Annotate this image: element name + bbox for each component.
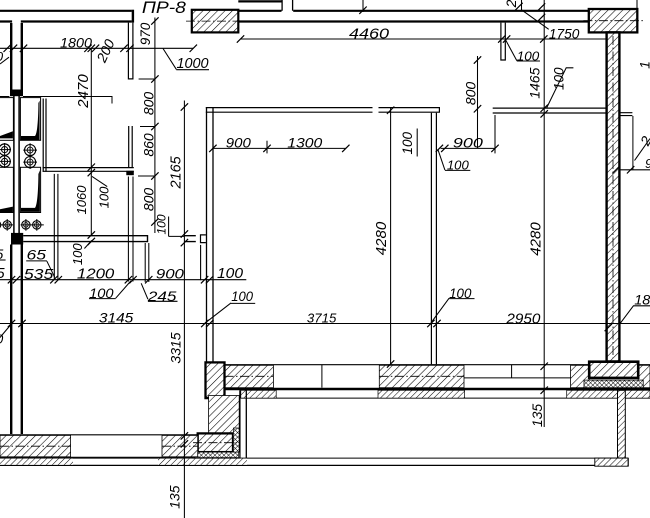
svg-text:800: 800 <box>140 188 156 212</box>
svg-text:3145: 3145 <box>99 310 134 326</box>
svg-text:9: 9 <box>645 156 650 171</box>
svg-text:1: 1 <box>637 61 650 69</box>
svg-text:100: 100 <box>89 285 114 301</box>
svg-text:65: 65 <box>27 246 47 262</box>
svg-text:2950: 2950 <box>505 311 540 327</box>
svg-text:4280: 4280 <box>528 222 545 256</box>
svg-text:2470: 2470 <box>75 74 92 109</box>
svg-text:100: 100 <box>449 285 472 301</box>
svg-text:900: 900 <box>226 134 251 150</box>
svg-text:1750: 1750 <box>549 25 580 41</box>
svg-text:245: 245 <box>147 288 177 304</box>
svg-text:180: 180 <box>634 291 650 307</box>
svg-text:135: 135 <box>167 485 183 509</box>
svg-text:100: 100 <box>70 243 85 265</box>
svg-text:100: 100 <box>217 266 243 282</box>
svg-text:100: 100 <box>154 214 168 234</box>
svg-text:100: 100 <box>97 186 112 208</box>
svg-text:5: 5 <box>0 246 4 262</box>
svg-text:1300: 1300 <box>287 134 322 150</box>
svg-text:100: 100 <box>551 67 566 90</box>
svg-text:1060: 1060 <box>74 185 89 215</box>
svg-text:800: 800 <box>462 82 478 106</box>
svg-text:1800: 1800 <box>60 35 92 51</box>
svg-text:1200: 1200 <box>77 267 114 283</box>
svg-text:100: 100 <box>231 288 253 304</box>
svg-text:2: 2 <box>503 0 519 8</box>
svg-text:4460: 4460 <box>349 26 390 43</box>
svg-text:970: 970 <box>138 22 153 45</box>
svg-text:800: 800 <box>140 92 156 116</box>
svg-text:3315: 3315 <box>168 332 184 363</box>
svg-text:860: 860 <box>140 133 156 157</box>
svg-text:ПР-8: ПР-8 <box>142 0 187 17</box>
svg-text:535: 535 <box>24 267 55 283</box>
svg-text:2165: 2165 <box>169 155 185 189</box>
svg-text:135: 135 <box>529 404 545 428</box>
svg-text:4280: 4280 <box>373 221 390 255</box>
svg-text:3715: 3715 <box>307 311 337 326</box>
svg-text:100: 100 <box>447 157 470 172</box>
svg-text:100: 100 <box>400 131 415 154</box>
svg-text:1465: 1465 <box>527 67 543 98</box>
svg-text:100: 100 <box>517 49 540 64</box>
svg-text:900: 900 <box>156 265 184 281</box>
svg-text:1000: 1000 <box>177 56 209 72</box>
svg-text:900: 900 <box>453 134 483 150</box>
